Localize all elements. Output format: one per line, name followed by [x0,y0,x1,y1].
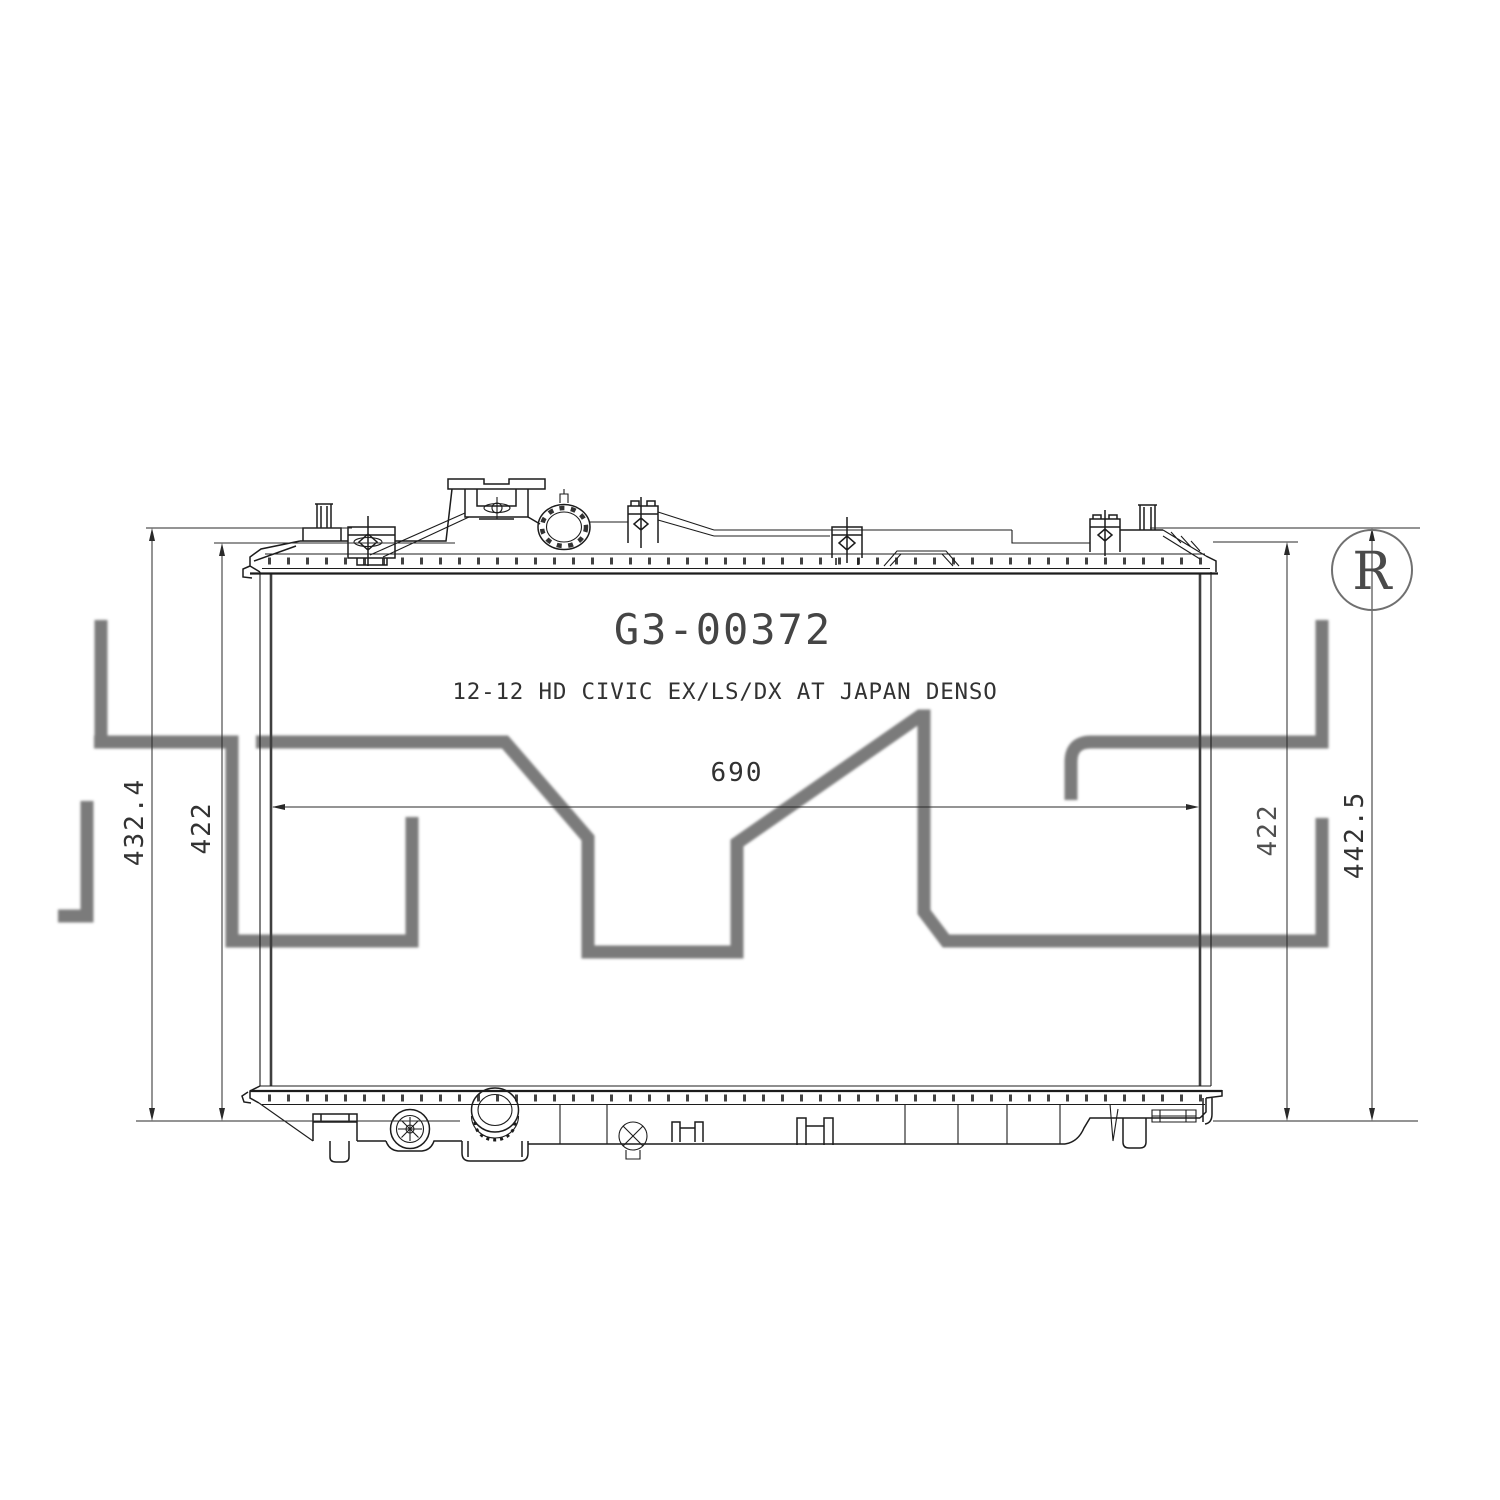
cap-top-tab [560,489,568,503]
dim-label-left-outer: 432.4 [120,778,150,866]
bottom-right-notch [1123,1118,1146,1148]
cap-inner-ring [547,512,582,542]
pipe-inner-ring [478,1095,512,1126]
drain-plug [386,1110,462,1152]
bottom-clip-right [797,1118,833,1145]
registered-mark: R [1332,530,1412,610]
dim-label-right-outer: 442.5 [1340,791,1370,879]
sensor-boss [619,1122,647,1159]
top-bracket-right-bolt [839,517,855,563]
sensor-x-mark [623,1126,643,1146]
top-profile-line-b [714,530,1012,536]
bottom-left-gusset [259,1103,313,1141]
bottom-right-corner [1200,1090,1222,1124]
bottom-right-plate [1152,1110,1196,1122]
filler-neck-rise [395,489,540,541]
top-bracket-far-right-bolt [1098,510,1112,556]
registered-mark-letter: R [1352,542,1393,602]
part-number-text: G3-00372 [614,605,832,654]
cap-lug-ring [542,508,586,546]
top-bracket-center [628,501,658,543]
technical-drawing-page: G3-00372 12-12 HD CIVIC EX/LS/DX AT JAPA… [0,0,1500,1500]
right-mounting-pin [1120,505,1163,530]
filler-flange [448,479,545,489]
top-right-wedge [1163,530,1206,559]
bottom-right-fin [1110,1104,1118,1141]
radiator-outline [242,479,1222,1162]
application-description-text: 12-12 HD CIVIC EX/LS/DX AT JAPAN DENSO [452,679,997,705]
bottom-left-corner [242,1086,260,1103]
watermark-t-hook-stroke [58,801,87,916]
top-profile-step [1012,530,1090,543]
top-bracket-center-bolt [634,497,648,548]
radiator-cap-opening [538,489,590,550]
watermark-c-stroke [1071,620,1322,800]
sensor-tab [626,1150,640,1159]
bottom-clip-left [672,1122,703,1142]
top-right-corner [1206,556,1216,572]
radiator-diagram: G3-00372 12-12 HD CIVIC EX/LS/DX AT JAPA… [0,0,1500,1500]
outlet-pipe [462,1088,528,1161]
pipe-crimp-arc [475,1122,515,1140]
dim-label-right-inner: 422 [1253,804,1283,857]
dim-label-overall-width: 690 [711,758,764,788]
tyc-watermark-logo [58,620,1322,952]
dim-label-left-inner: 422 [187,802,217,855]
pipe-clamp [462,1141,528,1161]
cap-outer-ring [538,505,590,550]
top-gusset-diagonals [658,512,714,536]
pipe-lower-lip [472,1116,519,1138]
left-mounting-pin [300,504,348,541]
